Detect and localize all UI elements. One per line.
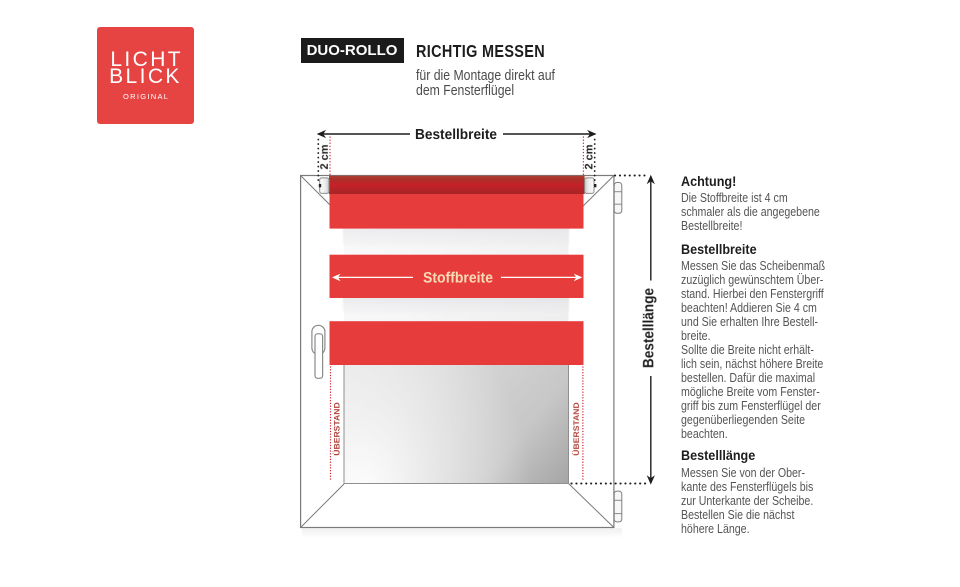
svg-text:2 cm: 2 cm: [583, 144, 595, 169]
svg-text:Bestellbreite: Bestellbreite: [415, 127, 497, 143]
svg-text:Bestelllänge: Bestelllänge: [640, 288, 657, 368]
svg-text:ÜBERSTAND: ÜBERSTAND: [333, 402, 342, 456]
svg-text:2 cm: 2 cm: [319, 144, 331, 169]
svg-text:Stoffbreite: Stoffbreite: [423, 270, 493, 287]
svg-text:ÜBERSTAND: ÜBERSTAND: [572, 402, 581, 456]
